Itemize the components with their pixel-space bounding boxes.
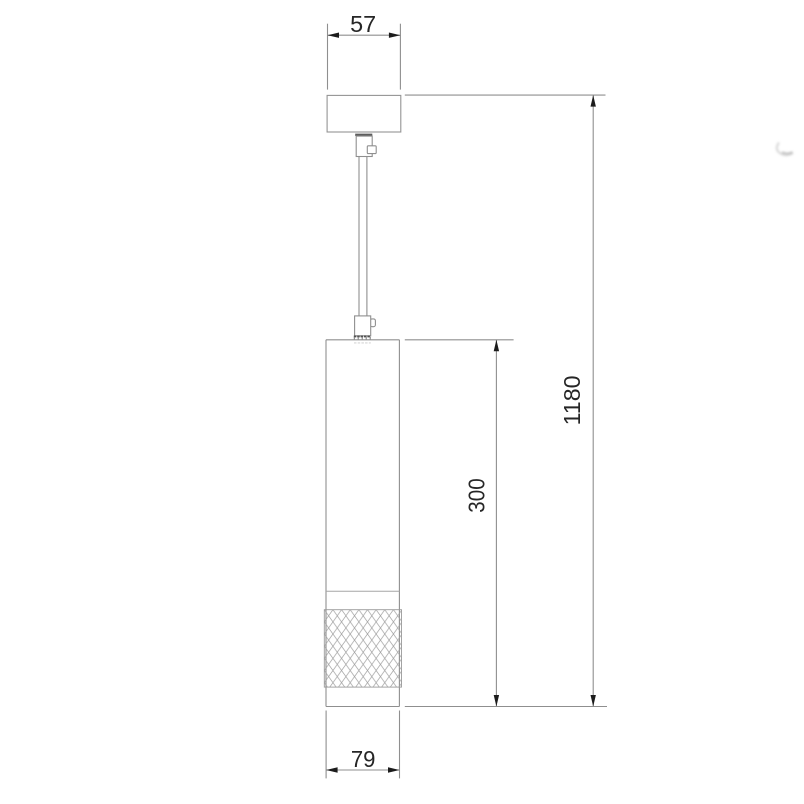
svg-text:300: 300 — [463, 478, 489, 512]
svg-text:57: 57 — [350, 11, 376, 37]
svg-text:79: 79 — [351, 746, 376, 772]
svg-text:1180: 1180 — [559, 375, 585, 425]
